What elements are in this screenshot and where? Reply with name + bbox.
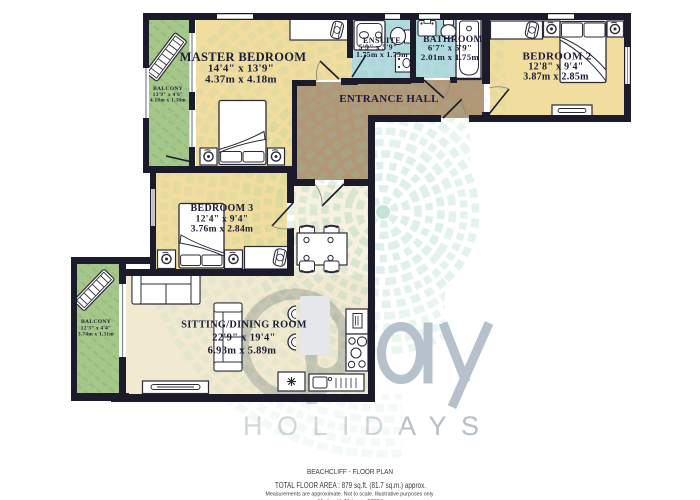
- svg-text:2.01m x 1.75m: 2.01m x 1.75m: [421, 52, 480, 62]
- svg-text:Measurements are approximate.: Measurements are approximate. Not to sca…: [266, 492, 434, 498]
- svg-text:3.87m x 2.85m: 3.87m x 2.85m: [523, 72, 589, 83]
- svg-text:12'4" x 9'4": 12'4" x 9'4": [196, 215, 249, 225]
- svg-text:1.75m x 1.75m: 1.75m x 1.75m: [356, 50, 408, 59]
- svg-text:4.18m x 1.38m: 4.18m x 1.38m: [150, 98, 186, 104]
- svg-text:22'9" x 19'4": 22'9" x 19'4": [212, 333, 275, 344]
- svg-text:4.37m x 4.18m: 4.37m x 4.18m: [205, 74, 277, 86]
- svg-text:3.76m x 2.84m: 3.76m x 2.84m: [191, 225, 253, 235]
- svg-text:BALCONY: BALCONY: [81, 319, 111, 325]
- svg-text:BEACHCLIFF - FLOOR PLAN: BEACHCLIFF - FLOOR PLAN: [307, 467, 393, 476]
- svg-text:6.93m x 5.89m: 6.93m x 5.89m: [208, 346, 277, 357]
- svg-text:3.74m x 1.31m: 3.74m x 1.31m: [78, 332, 114, 338]
- svg-text:6'7" x 5'9": 6'7" x 5'9": [428, 43, 472, 53]
- svg-text:TOTAL FLOOR AREA : 879 sq.ft.: TOTAL FLOOR AREA : 879 sq.ft. (81.7 sq.m…: [275, 481, 426, 490]
- svg-text:ENTRANCE HALL: ENTRANCE HALL: [339, 93, 439, 105]
- svg-text:SITTING/DINING ROOM: SITTING/DINING ROOM: [181, 320, 307, 331]
- svg-text:BEDROOM 3: BEDROOM 3: [191, 203, 254, 214]
